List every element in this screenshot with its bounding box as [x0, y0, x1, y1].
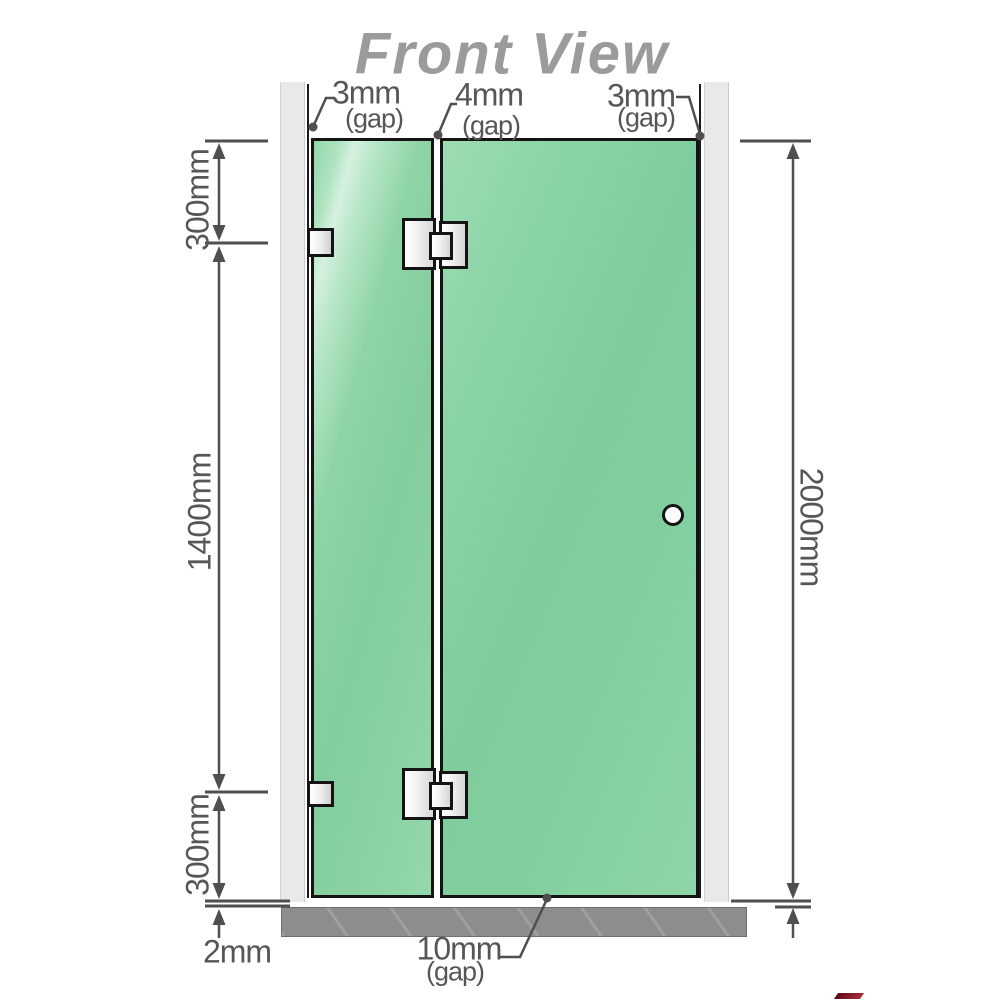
glass-hinge-bottom-tab — [429, 782, 453, 810]
gap-left-unit: (gap) — [345, 104, 403, 135]
dimension-mid-left: 1400mm — [182, 453, 219, 572]
right-wall-channel-line — [699, 84, 701, 898]
wall-bracket-bottom — [307, 781, 334, 807]
left-wall-channel-line — [307, 84, 309, 898]
glass-hinge-top-tab — [429, 232, 453, 260]
door-glass-panel — [440, 138, 699, 898]
gap-bottom-unit: (gap) — [426, 957, 484, 988]
wall-bracket-top — [307, 228, 334, 257]
dimension-floor-gap: 2mm — [203, 934, 271, 971]
gap-middle-unit: (gap) — [462, 111, 520, 142]
floor-base — [281, 907, 747, 937]
door-handle-knob — [662, 504, 684, 526]
gap-middle-value: 4mm — [455, 77, 523, 114]
red-watermark-fragment — [834, 993, 864, 999]
left-wall — [280, 82, 305, 902]
gap-right-unit: (gap) — [617, 103, 675, 134]
shower-screen-front-view-diagram: Front View — [0, 0, 1000, 1000]
right-wall — [704, 82, 729, 902]
dimension-top-left: 300mm — [180, 149, 217, 251]
dimension-right-height: 2000mm — [793, 468, 830, 587]
dimension-bottom-left: 300mm — [180, 794, 217, 896]
